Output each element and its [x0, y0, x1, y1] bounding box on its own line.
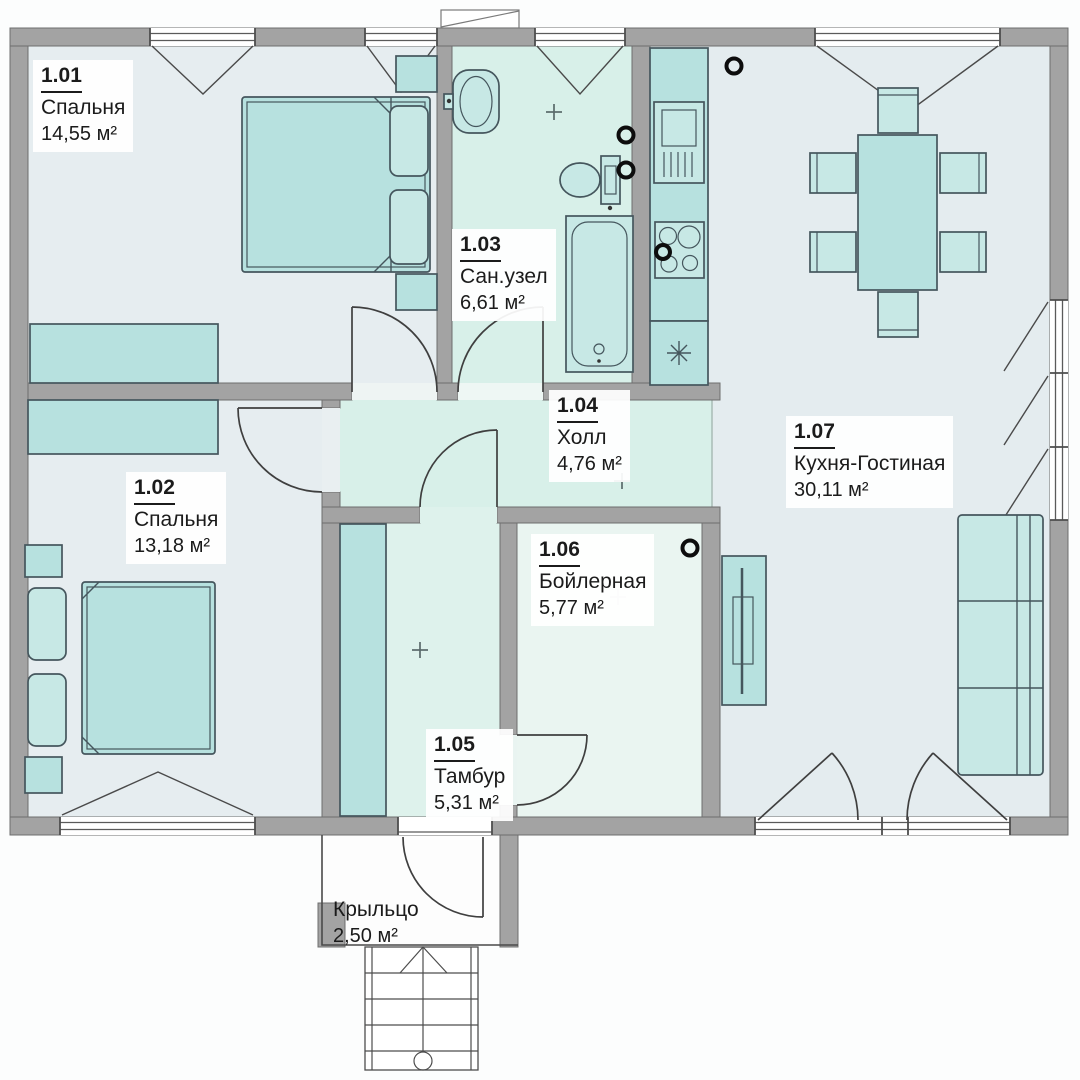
wall-hall-north-stub	[437, 383, 458, 400]
nightstand	[25, 545, 62, 577]
room-name: Спальня	[41, 95, 125, 122]
wall-vestibule-north	[322, 507, 420, 523]
room-number: 1.05	[434, 732, 475, 762]
floor-hall	[340, 400, 712, 507]
room-name: Крыльцо	[333, 896, 419, 923]
chair	[878, 88, 918, 133]
room-number: 1.01	[41, 63, 82, 93]
wall-porch-right	[500, 835, 518, 947]
wall-bedroom2-east	[322, 492, 340, 817]
opening-hall-vestibule	[420, 507, 497, 523]
nightstand	[396, 274, 437, 310]
wall-vestibule-boiler	[500, 523, 517, 735]
room-number: 1.03	[460, 232, 501, 262]
opening-bedroom1	[352, 383, 437, 400]
wall-boiler-living	[702, 523, 720, 817]
bathtub	[566, 216, 633, 372]
double-bed	[242, 97, 430, 272]
wall-bedroom2-east-stub	[322, 400, 340, 408]
chair	[940, 153, 986, 193]
room-label-1-06: 1.06 Бойлерная 5,77 м²	[531, 534, 654, 626]
room-label-1-02: 1.02 Спальня 13,18 м²	[126, 472, 226, 564]
wardrobe	[340, 524, 386, 816]
room-label-1-07: 1.07 Кухня-Гостиная 30,11 м²	[786, 416, 953, 508]
room-label-1-03: 1.03 Сан.узел 6,61 м²	[452, 229, 556, 321]
kitchen-counter	[650, 48, 708, 321]
pillow	[28, 588, 66, 660]
room-label-1-05: 1.05 Тамбур 5,31 м²	[426, 729, 513, 821]
porch-label: Крыльцо 2,50 м²	[333, 896, 419, 949]
pillow	[28, 674, 66, 746]
room-area: 2,50 м²	[333, 923, 419, 949]
room-name: Бойлерная	[539, 569, 646, 596]
room-area: 6,61 м²	[460, 291, 548, 317]
room-number: 1.07	[794, 419, 835, 449]
room-label-1-04: 1.04 Холл 4,76 м²	[549, 390, 630, 482]
room-area: 5,77 м²	[539, 596, 646, 622]
stove	[655, 222, 704, 278]
room-number: 1.02	[134, 475, 175, 505]
stairs	[365, 947, 478, 1070]
wall-bathroom-kitchen	[632, 46, 650, 400]
room-area: 13,18 м²	[134, 534, 218, 560]
pillow	[390, 190, 428, 264]
sofa	[958, 515, 1043, 775]
wardrobe	[30, 324, 218, 383]
nightstand	[396, 56, 437, 92]
chair	[810, 232, 856, 272]
dining-table	[858, 135, 937, 290]
room-name: Холл	[557, 425, 622, 452]
chair	[940, 232, 986, 272]
nightstand	[25, 757, 62, 793]
room-name: Спальня	[134, 507, 218, 534]
wall-boiler-north	[497, 507, 720, 523]
room-name: Сан.узел	[460, 264, 548, 291]
room-area: 30,11 м²	[794, 478, 945, 504]
room-area: 5,31 м²	[434, 791, 505, 817]
opening-bathroom	[458, 383, 543, 400]
wall-bedroom1-south	[28, 383, 352, 400]
room-name: Тамбур	[434, 764, 505, 791]
room-area: 4,76 м²	[557, 452, 622, 478]
room-label-1-01: 1.01 Спальня 14,55 м²	[33, 60, 133, 152]
room-number: 1.04	[557, 393, 598, 423]
fridge	[654, 102, 704, 183]
room-number: 1.06	[539, 537, 580, 567]
chair	[878, 292, 918, 337]
chair	[810, 153, 856, 193]
wardrobe	[28, 400, 218, 454]
wall-exterior-left	[10, 46, 28, 835]
room-area: 14,55 м²	[41, 122, 125, 148]
pillow	[390, 106, 428, 176]
tv-unit	[722, 556, 766, 705]
vent	[441, 10, 519, 28]
room-name: Кухня-Гостиная	[794, 451, 945, 478]
floor-plan: 1.01 Спальня 14,55 м² 1.02 Спальня 13,18…	[0, 0, 1080, 1080]
opening-bedroom2	[322, 408, 340, 492]
